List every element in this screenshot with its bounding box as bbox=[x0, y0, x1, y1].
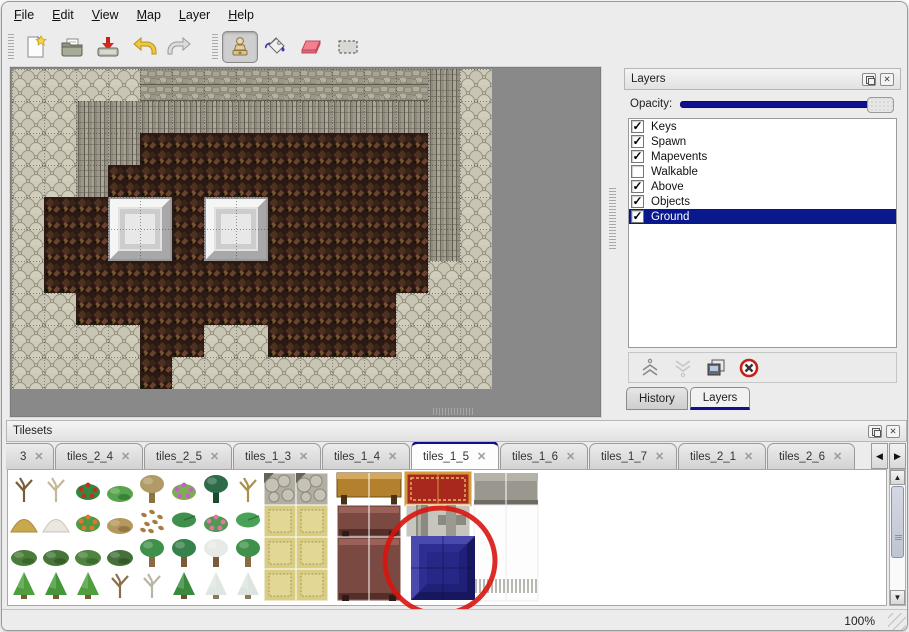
layer-name: Above bbox=[651, 181, 684, 193]
float-panel-button[interactable] bbox=[862, 73, 876, 86]
tileset-tab-label: tiles_2_4 bbox=[67, 451, 113, 463]
dock-tab-bar: HistoryLayers bbox=[626, 387, 752, 410]
tileset-tab-3[interactable]: 3✕ bbox=[6, 443, 54, 469]
move-layer-up-button[interactable] bbox=[639, 358, 661, 378]
select-tool-button[interactable] bbox=[330, 31, 366, 63]
layers-dock: Layers ✕ Opacity: ✓Keys✓Spawn✓MapeventsW… bbox=[624, 68, 901, 414]
opacity-slider-handle[interactable] bbox=[867, 97, 894, 113]
scroll-down-button[interactable]: ▼ bbox=[890, 590, 905, 605]
tab-close-icon[interactable]: ✕ bbox=[34, 450, 43, 463]
tab-close-icon[interactable]: ✕ bbox=[744, 450, 753, 463]
toolbar-drag-handle-2[interactable] bbox=[212, 34, 218, 60]
selection-rect-icon bbox=[335, 34, 361, 60]
layer-row-walkable[interactable]: Walkable bbox=[629, 164, 896, 179]
stamp-tool-button[interactable] bbox=[222, 31, 258, 63]
redo-button[interactable] bbox=[162, 31, 198, 63]
opacity-row: Opacity: bbox=[626, 95, 899, 113]
layer-name: Objects bbox=[651, 196, 690, 208]
layer-name: Spawn bbox=[651, 136, 686, 148]
tileset-tab-label: tiles_1_4 bbox=[334, 451, 380, 463]
layer-row-objects[interactable]: ✓Objects bbox=[629, 194, 896, 209]
tilesets-dock-header: Tilesets ✕ bbox=[6, 420, 907, 442]
fill-tool-button[interactable] bbox=[258, 31, 294, 63]
undo-button[interactable] bbox=[126, 31, 162, 63]
dock-tab-history[interactable]: History bbox=[626, 387, 688, 410]
tileset-tab-tiles_1_3[interactable]: tiles_1_3✕ bbox=[233, 443, 321, 469]
tileset-tab-label: tiles_2_1 bbox=[690, 451, 736, 463]
tileset-tab-tiles_2_5[interactable]: tiles_2_5✕ bbox=[144, 443, 232, 469]
layers-dock-header: Layers ✕ bbox=[624, 68, 901, 90]
layer-visibility-checkbox[interactable]: ✓ bbox=[631, 210, 644, 223]
dock-tab-layers[interactable]: Layers bbox=[690, 387, 751, 410]
tileset-tab-label: tiles_1_7 bbox=[601, 451, 647, 463]
tileset-tab-label: tiles_1_6 bbox=[512, 451, 558, 463]
open-folder-icon bbox=[59, 34, 85, 60]
layer-row-above[interactable]: ✓Above bbox=[629, 179, 896, 194]
menu-item-help[interactable]: Help bbox=[228, 8, 254, 22]
tileset-tab-bar: 3✕tiles_2_4✕tiles_2_5✕tiles_1_3✕tiles_1_… bbox=[6, 442, 871, 469]
app-window: FileEditViewMapLayerHelp bbox=[1, 1, 908, 631]
layer-name: Walkable bbox=[651, 166, 698, 178]
tab-close-icon[interactable]: ✕ bbox=[566, 450, 575, 463]
menu-item-map[interactable]: Map bbox=[137, 8, 161, 22]
delete-layer-button[interactable] bbox=[738, 358, 760, 378]
tileset-tab-label: 3 bbox=[20, 451, 26, 463]
tab-close-icon[interactable]: ✕ bbox=[655, 450, 664, 463]
layer-list: ✓Keys✓Spawn✓MapeventsWalkable✓Above✓Obje… bbox=[628, 118, 897, 348]
layer-visibility-checkbox[interactable]: ✓ bbox=[631, 195, 644, 208]
layer-visibility-checkbox[interactable]: ✓ bbox=[631, 135, 644, 148]
layer-visibility-checkbox[interactable]: ✓ bbox=[631, 180, 644, 193]
save-map-button[interactable] bbox=[90, 31, 126, 63]
float-tilesets-button[interactable] bbox=[868, 425, 882, 438]
layer-name: Mapevents bbox=[651, 151, 707, 163]
layer-visibility-checkbox[interactable]: ✓ bbox=[631, 120, 644, 133]
tileset-tab-tiles_2_6[interactable]: tiles_2_6✕ bbox=[767, 443, 855, 469]
toolbar-drag-handle[interactable] bbox=[8, 34, 14, 60]
vertical-splitter-handle[interactable] bbox=[609, 188, 616, 250]
tileset-tab-tiles_2_1[interactable]: tiles_2_1✕ bbox=[678, 443, 766, 469]
tileset-tab-label: tiles_2_6 bbox=[779, 451, 825, 463]
layer-visibility-checkbox[interactable] bbox=[631, 165, 644, 178]
tab-close-icon[interactable]: ✕ bbox=[121, 450, 130, 463]
tileset-tab-label: tiles_1_3 bbox=[245, 451, 291, 463]
scroll-tabs-left-button[interactable]: ◀ bbox=[871, 443, 888, 469]
opacity-slider[interactable] bbox=[680, 101, 891, 108]
tab-close-icon[interactable]: ✕ bbox=[210, 450, 219, 463]
tab-close-icon[interactable]: ✕ bbox=[477, 450, 486, 463]
scrollbar-thumb[interactable] bbox=[891, 486, 904, 558]
save-icon bbox=[95, 34, 121, 60]
horizontal-splitter-handle[interactable] bbox=[433, 408, 475, 415]
open-map-button[interactable] bbox=[54, 31, 90, 63]
layer-buttons-row bbox=[628, 352, 897, 383]
undo-icon bbox=[130, 34, 158, 60]
redo-icon bbox=[166, 34, 194, 60]
map-canvas[interactable] bbox=[10, 67, 601, 417]
tab-close-icon[interactable]: ✕ bbox=[388, 450, 397, 463]
new-map-button[interactable] bbox=[18, 31, 54, 63]
tileset-scrollbar[interactable]: ▲ ▼ bbox=[889, 469, 906, 606]
close-tilesets-button[interactable]: ✕ bbox=[886, 425, 900, 438]
layer-name: Ground bbox=[651, 211, 689, 223]
status-bar: 100% bbox=[2, 609, 907, 631]
menu-bar: FileEditViewMapLayerHelp bbox=[2, 2, 907, 28]
stamp-tool-icon bbox=[228, 35, 252, 59]
tileset-tab-label: tiles_1_5 bbox=[423, 451, 469, 463]
tileset-tab-tiles_1_5[interactable]: tiles_1_5✕ bbox=[411, 442, 499, 469]
toolbar bbox=[2, 28, 907, 66]
map-render bbox=[12, 69, 492, 389]
paint-bucket-icon bbox=[263, 34, 289, 60]
eraser-tool-button[interactable] bbox=[294, 31, 330, 63]
tab-close-icon[interactable]: ✕ bbox=[833, 450, 842, 463]
tab-close-icon[interactable]: ✕ bbox=[299, 450, 308, 463]
tileset-canvas[interactable] bbox=[7, 469, 887, 606]
layer-name: Keys bbox=[651, 121, 677, 133]
scroll-up-button[interactable]: ▲ bbox=[890, 470, 905, 485]
resize-grip[interactable] bbox=[888, 613, 906, 631]
layer-row-mapevents[interactable]: ✓Mapevents bbox=[629, 149, 896, 164]
menu-item-file[interactable]: File bbox=[14, 8, 34, 22]
layer-visibility-checkbox[interactable]: ✓ bbox=[631, 150, 644, 163]
menu-item-edit[interactable]: Edit bbox=[52, 8, 74, 22]
opacity-label: Opacity: bbox=[630, 98, 672, 110]
tilesets-dock-title: Tilesets bbox=[13, 425, 864, 437]
move-layer-down-button[interactable] bbox=[672, 358, 694, 378]
tileset-tab-tiles_1_6[interactable]: tiles_1_6✕ bbox=[500, 443, 588, 469]
tileset-tab-tiles_1_7[interactable]: tiles_1_7✕ bbox=[589, 443, 677, 469]
tileset-tab-tiles_2_4[interactable]: tiles_2_4✕ bbox=[55, 443, 143, 469]
tileset-tab-label: tiles_2_5 bbox=[156, 451, 202, 463]
duplicate-layer-button[interactable] bbox=[705, 358, 727, 378]
tileset-render bbox=[8, 470, 888, 620]
layer-row-ground[interactable]: ✓Ground bbox=[629, 209, 896, 224]
layer-row-keys[interactable]: ✓Keys bbox=[629, 119, 896, 134]
layers-dock-title: Layers bbox=[631, 73, 858, 85]
menu-item-layer[interactable]: Layer bbox=[179, 8, 210, 22]
tilesets-dock: Tilesets ✕ 3✕tiles_2_4✕tiles_2_5✕tiles_1… bbox=[6, 420, 907, 609]
layer-row-spawn[interactable]: ✓Spawn bbox=[629, 134, 896, 149]
menu-item-view[interactable]: View bbox=[92, 8, 119, 22]
zoom-level: 100% bbox=[844, 614, 875, 628]
new-file-icon bbox=[23, 34, 49, 60]
eraser-icon bbox=[298, 34, 326, 60]
close-panel-button[interactable]: ✕ bbox=[880, 73, 894, 86]
tileset-tab-tiles_1_4[interactable]: tiles_1_4✕ bbox=[322, 443, 410, 469]
scroll-tabs-right-button[interactable]: ▶ bbox=[889, 443, 906, 469]
